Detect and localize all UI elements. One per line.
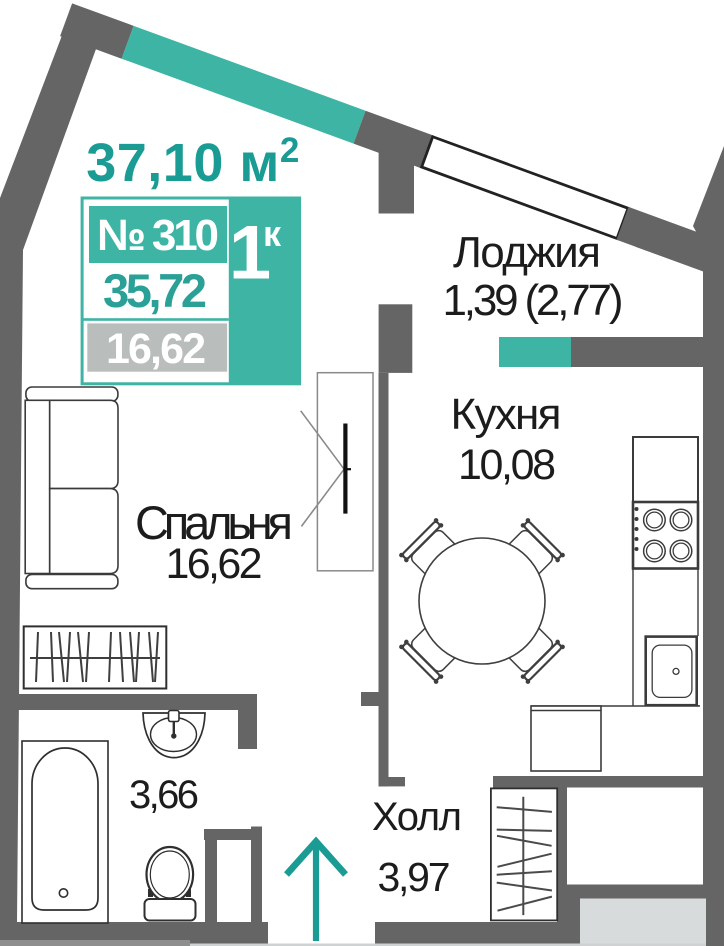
svg-text:3,66: 3,66 — [129, 773, 199, 817]
svg-text:к: к — [263, 213, 282, 254]
svg-text:35,72: 35,72 — [103, 264, 207, 317]
svg-text:Кухня: Кухня — [451, 390, 562, 439]
svg-text:37,10 м2: 37,10 м2 — [86, 131, 300, 193]
svg-text:№ 310: № 310 — [97, 211, 219, 260]
svg-text:Холл: Холл — [372, 795, 462, 839]
svg-text:1,39 (2,77): 1,39 (2,77) — [443, 276, 624, 325]
svg-text:3,97: 3,97 — [378, 854, 451, 900]
svg-text:10,08: 10,08 — [458, 441, 556, 489]
svg-text:16,62: 16,62 — [106, 325, 206, 373]
svg-text:16,62: 16,62 — [166, 540, 263, 588]
svg-text:Лоджия: Лоджия — [453, 228, 601, 277]
